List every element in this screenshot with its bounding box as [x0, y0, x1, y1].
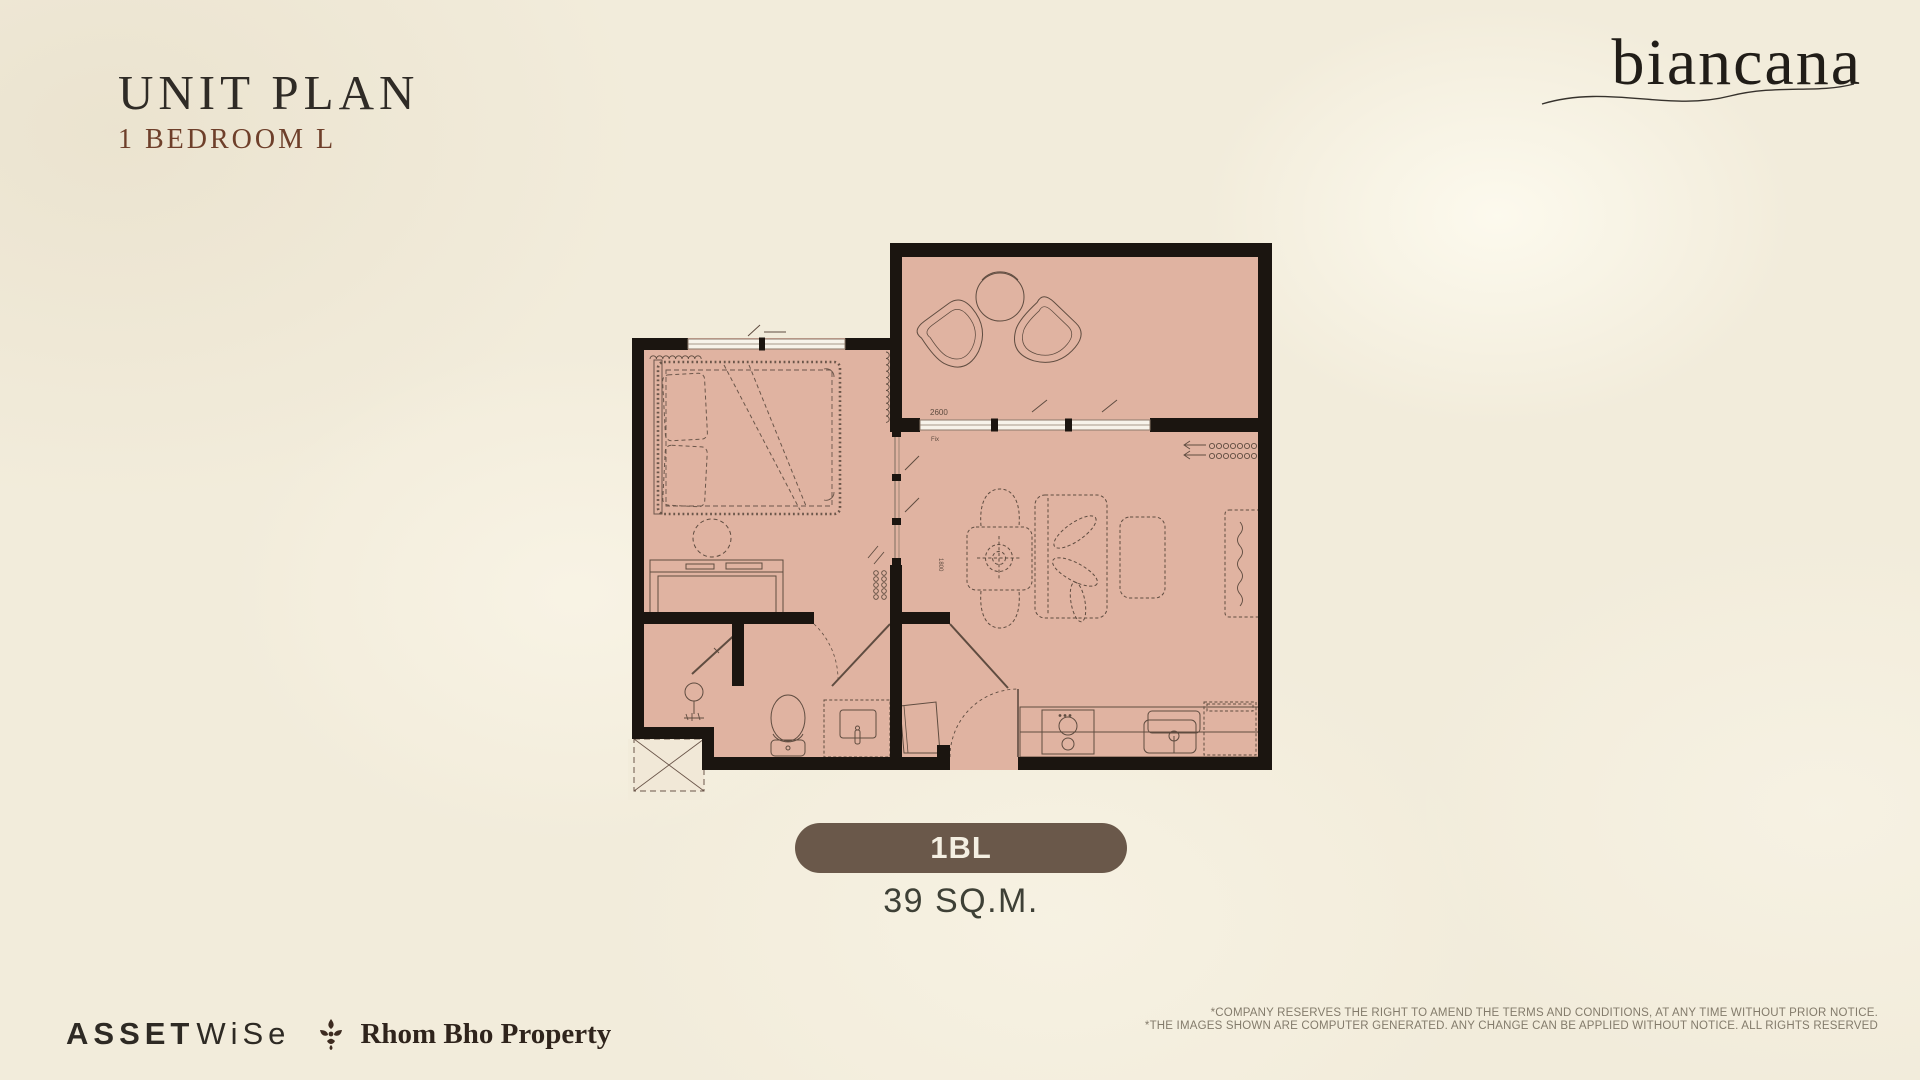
bedroom-window — [688, 325, 845, 351]
dimension-partition: 1800 — [937, 558, 943, 572]
disclaimer-line2: *THE IMAGES SHOWN ARE COMPUTER GENERATED… — [1145, 1020, 1878, 1033]
unit-code: 1BL — [930, 830, 992, 866]
disclaimer-line1: *COMPANY RESERVES THE RIGHT TO AMEND THE… — [1145, 1007, 1878, 1020]
room-fill — [628, 243, 1272, 800]
assetwise-logo: ASSET WiSe — [66, 1016, 290, 1052]
service-shaft — [634, 739, 704, 791]
page-title: UNIT PLAN — [118, 68, 419, 117]
unit-area: 39 SQ.M. — [795, 882, 1127, 921]
brand-logo: biancana — [1611, 26, 1862, 99]
rhombho-logo: Rhom Bho Property — [314, 1017, 611, 1051]
assetwise-logo-part2: WiSe — [196, 1016, 290, 1052]
floorplan-drawing: 2600 Fix 1800 — [628, 240, 1278, 800]
page-subtitle: 1 BEDROOM L — [118, 126, 419, 154]
fixed-glass-label: Fix — [931, 437, 939, 443]
unit-code-badge: 1BL — [795, 823, 1127, 873]
rhombho-logo-text: Rhom Bho Property — [360, 1018, 611, 1051]
brand-block: biancana — [1532, 30, 1862, 126]
developer-logos: ASSET WiSe Rhom Bho Property — [66, 1016, 611, 1052]
dimension-balcony-width: 2600 — [930, 408, 948, 417]
disclaimer-block: *COMPANY RESERVES THE RIGHT TO AMEND THE… — [1145, 1007, 1878, 1032]
unit-plan-poster: { "header": { "title": "UNIT PLAN", "sub… — [0, 0, 1920, 1080]
title-block: UNIT PLAN 1 BEDROOM L — [118, 68, 419, 154]
rhombho-leaf-cluster-icon — [314, 1017, 348, 1051]
balcony-sliding-door — [920, 419, 1150, 432]
assetwise-logo-part1: ASSET — [66, 1016, 194, 1052]
